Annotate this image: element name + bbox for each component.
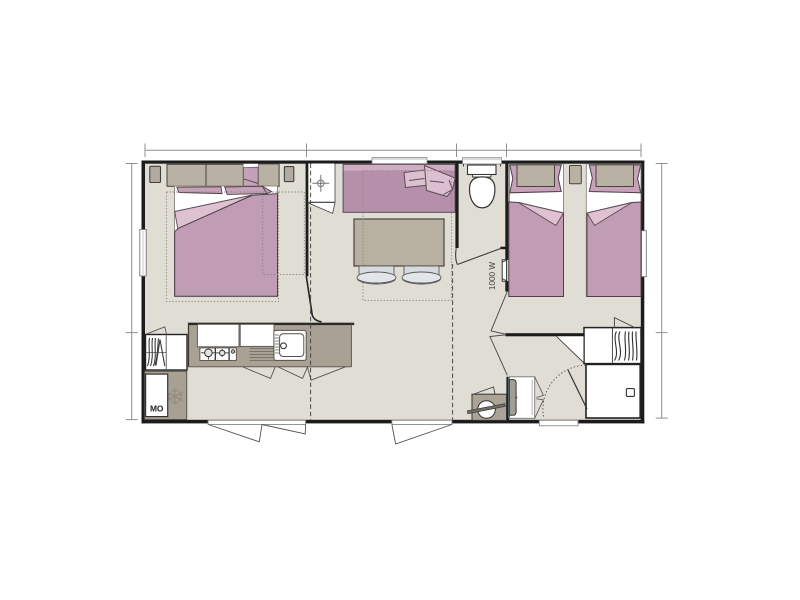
svg-text:MO: MO (150, 404, 164, 414)
svg-text:1000 W: 1000 W (488, 262, 497, 290)
